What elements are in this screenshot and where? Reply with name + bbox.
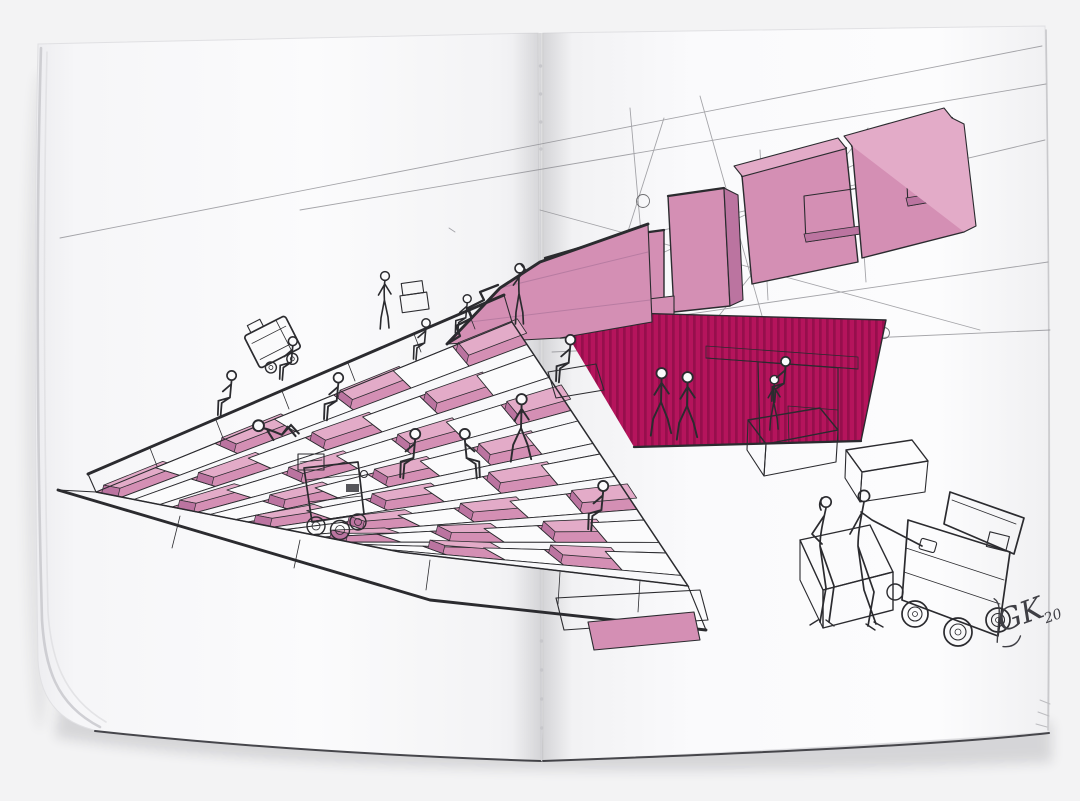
photo-backdrop: GK20: [0, 0, 1080, 801]
sketchbook-photo: GK20: [0, 0, 1080, 801]
cart-slot: [346, 484, 359, 492]
letter-block: [668, 188, 730, 312]
